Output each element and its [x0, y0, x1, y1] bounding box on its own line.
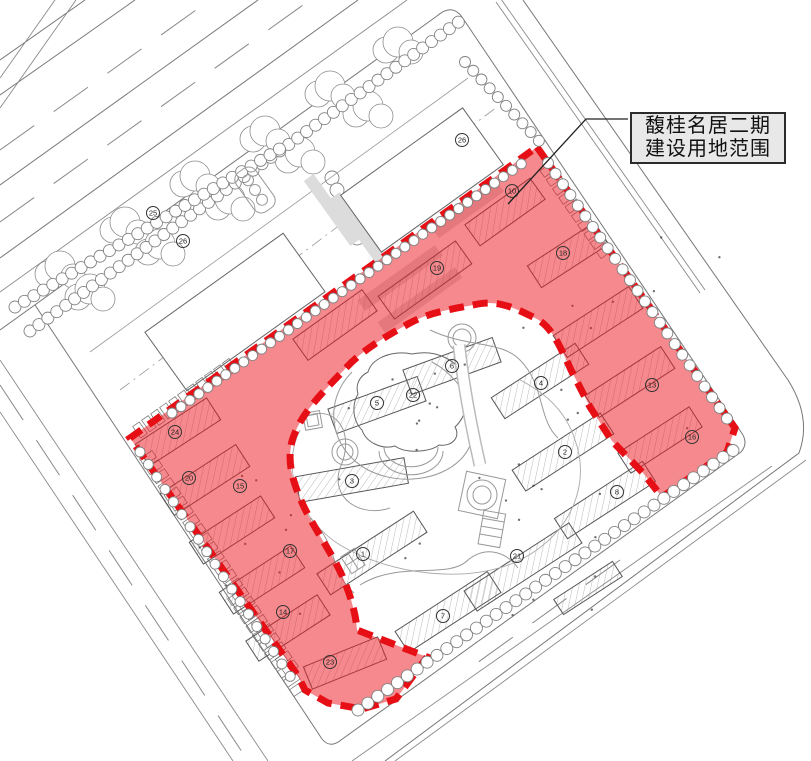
nw-inner-tree — [498, 172, 508, 182]
nw-inner-tree — [507, 165, 517, 175]
annotation-line2: 建设用地范围 — [645, 138, 771, 161]
building-number-text: 24 — [171, 428, 179, 437]
sw-edge-tree — [143, 459, 153, 469]
ne-edge-tree — [460, 57, 471, 68]
nw-inner-tree — [436, 216, 446, 226]
ne-edge-tree — [468, 65, 479, 76]
ne-edge-tree — [509, 109, 520, 120]
survey-dot — [391, 378, 393, 380]
nw-inner-tree — [239, 357, 249, 367]
building-number: 26 — [177, 235, 190, 248]
sw-edge-tree — [218, 572, 228, 582]
building-number-text: 2 — [563, 448, 567, 457]
stair-step — [483, 518, 505, 522]
survey-dot — [429, 402, 431, 404]
building-number-text: 4 — [539, 379, 543, 388]
ne-edge-tree — [707, 392, 718, 403]
ne-edge-tree — [699, 381, 710, 392]
ne-edge-tree — [610, 253, 621, 264]
sw-edge-tree — [193, 534, 203, 544]
building-number-text: 20 — [185, 474, 193, 483]
shrub-circle — [161, 242, 185, 266]
ne-edge-tree — [692, 370, 703, 381]
ne-edge-tree — [602, 243, 613, 254]
nw-inner-tree — [266, 338, 276, 348]
nw-inner-tree — [409, 236, 419, 246]
nw-inner-tree — [248, 351, 258, 361]
plaza-frame — [458, 471, 505, 518]
nw-inner-tree — [472, 191, 482, 201]
survey-dot — [436, 406, 438, 408]
sw-edge-tree — [177, 509, 187, 519]
building-number-text: 26 — [458, 136, 466, 145]
nw-inner-tree — [301, 312, 311, 322]
survey-dot — [511, 614, 513, 616]
survey-dot — [505, 499, 507, 501]
sw-edge-tree — [160, 484, 170, 494]
building-number-text: 1 — [361, 550, 365, 559]
survey-dot — [518, 519, 520, 521]
ne-edge-tree — [557, 179, 568, 190]
survey-dot — [415, 449, 417, 451]
nw-inner-tree — [516, 159, 526, 169]
ne-edge-tree — [565, 189, 576, 200]
building-number-text: 25 — [149, 209, 157, 218]
ne-edge-tree — [580, 211, 591, 222]
nw-inner-tree — [176, 402, 186, 412]
building-number-text: 22 — [409, 391, 417, 400]
survey-dot — [518, 463, 520, 465]
boulevard-tree — [273, 143, 285, 155]
sw-edge-tree — [260, 634, 270, 644]
building-number-text: 13 — [648, 381, 656, 390]
building-number-text: 3 — [350, 477, 354, 486]
ne-edge-tree — [525, 127, 536, 138]
sw-edge-tree — [202, 547, 212, 557]
survey-dot — [532, 598, 534, 600]
ne-edge-tree — [617, 264, 628, 275]
survey-dot — [567, 418, 569, 420]
plaza-circle — [467, 480, 497, 510]
nw-inner-tree — [274, 331, 284, 341]
building-number-text: 17 — [286, 547, 294, 556]
nw-inner-tree — [427, 223, 437, 233]
ne-edge-tree — [721, 413, 732, 424]
cross-road-line — [0, 0, 76, 108]
survey-dot — [522, 327, 524, 329]
sw-edge-tree — [285, 671, 295, 681]
stair-step — [480, 534, 502, 538]
building-number-text: 18 — [559, 249, 567, 258]
boulevard-lane-dash — [0, 0, 210, 150]
nw-inner-tree — [292, 319, 302, 329]
nw-inner-tree — [463, 197, 473, 207]
building-number-text: 8 — [615, 488, 619, 497]
nw-inner-tree — [489, 178, 499, 188]
survey-dot — [599, 493, 601, 495]
nw-inner-tree — [319, 299, 329, 309]
signal-circle — [247, 182, 262, 197]
nw-inner-tree — [373, 261, 383, 271]
boulevard-tree — [452, 16, 464, 28]
sw-edge-tree — [152, 472, 162, 482]
survey-dot — [718, 256, 720, 258]
survey-dot — [653, 290, 655, 292]
ne-edge-tree — [654, 317, 665, 328]
ne-edge-tree — [501, 100, 512, 111]
boulevard-line — [0, 0, 85, 60]
survey-dot — [540, 488, 542, 490]
nw-inner-tree — [445, 210, 455, 220]
annotation-line1: 馥桂名居二期 — [645, 115, 771, 138]
corner-arc-east — [741, 432, 745, 452]
survey-dot — [478, 477, 480, 479]
nw-inner-tree — [167, 408, 177, 418]
building-number-text: 23 — [326, 658, 334, 667]
nw-inner-tree — [364, 267, 374, 277]
shrub-circle — [369, 104, 393, 128]
ne-edge-tree — [684, 360, 695, 371]
nw-inner-tree — [418, 229, 428, 239]
sw-edge-tree — [277, 659, 287, 669]
nw-inner-tree — [221, 370, 231, 380]
ne-edge-tree — [639, 296, 650, 307]
ne-edge-tree — [714, 402, 725, 413]
building-number-text: 15 — [236, 482, 244, 491]
nw-inner-tree — [310, 306, 320, 316]
nw-inner-tree — [454, 204, 464, 214]
ne-edge-tree — [492, 92, 503, 103]
cross-road-line — [0, 0, 55, 78]
nw-inner-tree — [391, 248, 401, 258]
sw-edge-tree — [227, 584, 237, 594]
nw-inner-tree — [257, 344, 267, 354]
ne-edge-tree — [677, 349, 688, 360]
nw-inner-tree — [346, 280, 356, 290]
ne-edge-tree — [572, 200, 583, 211]
ne-edge-tree — [543, 158, 554, 169]
survey-dot — [660, 236, 662, 238]
sw-edge-tree — [210, 559, 220, 569]
ne-edge-tree — [476, 74, 487, 85]
sw-edge-tree — [243, 609, 253, 619]
boulevard-line — [0, 0, 258, 185]
survey-dot — [560, 389, 562, 391]
building-number-text: 19 — [433, 264, 441, 273]
sw-edge-tree — [135, 447, 145, 457]
ne-edge-tree — [587, 221, 598, 232]
corner-arc-south — [322, 739, 341, 744]
building-number-text: 16 — [688, 433, 696, 442]
ne-edge-tree — [625, 275, 636, 286]
sw-edge-tree — [235, 597, 245, 607]
survey-dot — [404, 557, 406, 559]
survey-dot — [416, 422, 418, 424]
nw-inner-tree — [355, 274, 365, 284]
survey-dot — [418, 419, 420, 421]
ne-edge-tree — [647, 307, 658, 318]
survey-dot — [419, 542, 421, 544]
site-plan: 2526261018191316242015171423226543217821… — [0, 0, 811, 761]
survey-dot — [591, 609, 593, 611]
ne-edge-tree — [669, 339, 680, 350]
survey-dot — [464, 363, 466, 365]
survey-dot — [594, 575, 596, 577]
nw-inner-tree — [400, 242, 410, 252]
survey-dot — [594, 536, 596, 538]
signal-circle — [254, 192, 269, 207]
sw-edge-tree — [185, 522, 195, 532]
annotation-box: 馥桂名居二期 建设用地范围 — [630, 112, 786, 164]
sw-edge-tree — [269, 646, 279, 656]
se-road-mid — [352, 466, 772, 761]
building-number-text: 6 — [450, 362, 454, 371]
ne-edge-tree — [533, 135, 544, 146]
survey-dot — [532, 485, 534, 487]
ne-edge-tree — [632, 285, 643, 296]
nw-inner-tree — [480, 184, 490, 194]
nw-inner-tree — [203, 382, 213, 392]
stair-step — [481, 526, 503, 530]
survey-dot — [434, 372, 436, 374]
ne-edge-tree — [517, 118, 528, 129]
building-number-text: 14 — [279, 608, 287, 617]
boulevard-line — [0, 0, 407, 292]
nw-inner-tree — [337, 287, 347, 297]
nw-inner-tree — [328, 293, 338, 303]
ne-edge-tree — [662, 328, 673, 339]
plaza-circle — [453, 329, 471, 347]
sw-edge-tree — [252, 622, 262, 632]
building-number-text: 21 — [513, 552, 521, 561]
survey-dot — [199, 546, 201, 548]
nw-inner-tree — [194, 389, 204, 399]
survey-dot — [225, 584, 227, 586]
survey-dot — [338, 478, 340, 480]
ne-edge-tree — [484, 83, 495, 94]
plaza-circle — [473, 486, 491, 504]
nw-inner-tree — [283, 325, 293, 335]
se-edge-tree — [727, 444, 739, 456]
nw-inner-tree — [185, 395, 195, 405]
nw-inner-tree — [212, 376, 222, 386]
building-number-text: 26 — [179, 237, 187, 246]
survey-dot — [348, 407, 350, 409]
nw-inner-tree — [230, 363, 240, 373]
building-number-text: 5 — [375, 399, 379, 408]
ne-edge-tree — [595, 232, 606, 243]
building-number-text: 7 — [441, 612, 445, 621]
ne-edge-tree — [550, 168, 561, 179]
survey-dot — [577, 412, 579, 414]
boulevard-lane-dash — [0, 0, 310, 222]
building-number-text: 10 — [508, 187, 516, 196]
nw-inner-tree — [382, 255, 392, 265]
boulevard-line — [0, 0, 135, 95]
shrub-circle — [301, 150, 325, 174]
shrub-circle — [231, 197, 255, 221]
sw-edge-tree — [168, 497, 178, 507]
